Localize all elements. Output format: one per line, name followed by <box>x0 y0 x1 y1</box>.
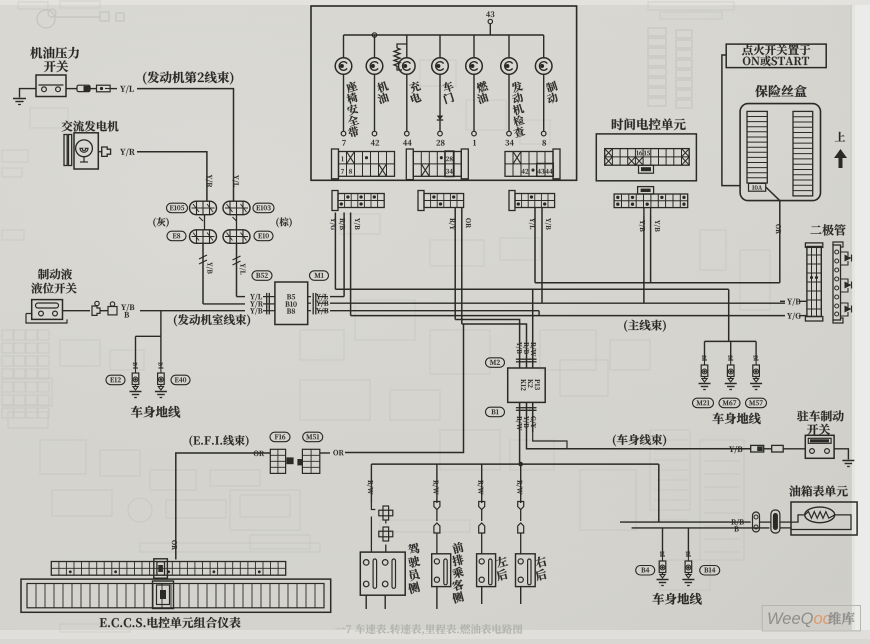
svg-text:WeeQoo: WeeQoo <box>767 610 832 628</box>
